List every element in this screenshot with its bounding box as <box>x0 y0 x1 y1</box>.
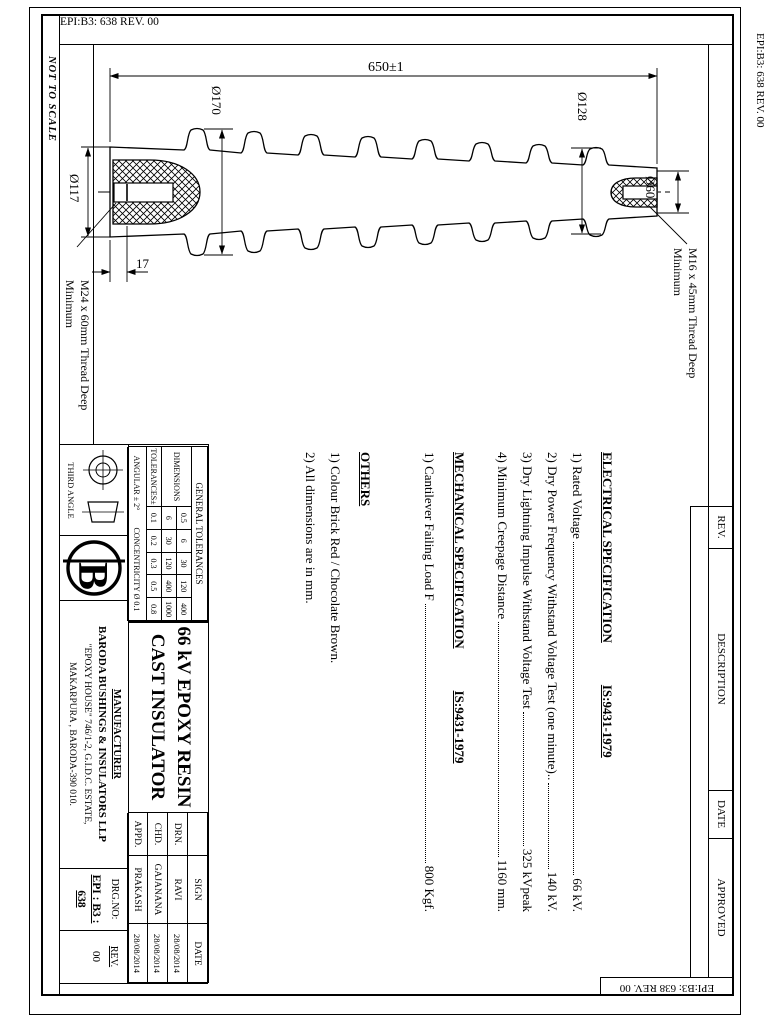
rev-header-date: DATE <box>708 790 734 838</box>
drawing-sheet: EPI:B3: 638 REV. 00 EPI:B3: 638 REV. 00 … <box>0 0 768 1024</box>
m24-note: M24 x 60mm Thread Deep Minimum <box>62 280 92 445</box>
angular-concentricity-row: ANGULAR ± 2° CONCENTRICITY Ø 0.1 <box>127 447 146 621</box>
tol-cell: 0.1 <box>146 507 161 530</box>
dot-leader <box>523 712 524 846</box>
rev-label: REV. <box>106 930 121 983</box>
sign-row-name: RAVI <box>167 856 187 924</box>
dim-length-label: 650±1 <box>368 60 404 75</box>
spec-item: 3) Dry Lightning Impulse Withstand Volta… <box>519 452 535 912</box>
bottom-code-box-top <box>600 977 734 978</box>
third-angle-symbol <box>78 446 128 535</box>
drawing-title-line2: CAST INSULATOR <box>144 622 170 812</box>
dim-cell: 400 <box>161 575 176 598</box>
logo-cell: B <box>59 535 128 600</box>
sign-row-label: CHD. <box>147 813 167 856</box>
rev-header-rev: REV. <box>708 506 734 548</box>
tolerances-label: TOLERANCES± <box>146 447 161 507</box>
concentricity-tolerance: CONCENTRICITY Ø 0.1 <box>133 527 142 611</box>
m16-note-line2: Minimum <box>670 248 685 416</box>
spec-item-value: 66 kV. <box>569 878 585 912</box>
dim-cell: 400 <box>176 598 191 621</box>
electrical-spec-standard: IS:9431-1979 <box>599 685 615 758</box>
drg-no-label: DRG.NO: <box>107 868 122 930</box>
others-item: 1) Colour Brick Red / Chocolate Brown. <box>327 452 343 912</box>
spec-item-label: 1) Rated Voltage <box>569 452 585 539</box>
dot-leader <box>548 783 549 868</box>
dim-cell: 1000 <box>161 598 176 621</box>
dot-leader <box>425 604 426 863</box>
mechanical-spec-title: MECHANICAL SPECIFICATION <box>451 452 467 649</box>
dim-cell: 6 <box>176 530 191 553</box>
spec-block: ELECTRICAL SPECIFICATION IS:9431-1979 1)… <box>285 450 615 920</box>
spec-item: 1) Rated Voltage 66 kV. <box>569 452 585 912</box>
svg-text:B: B <box>69 562 115 590</box>
tolerance-table: GENERAL TOLERANCES DIMENSIONS 0.5 6 30 1… <box>128 446 208 622</box>
drawing-title-line1: 66 kV EPOXY RESIN <box>170 622 196 812</box>
insulator-drawing: 650±1 Ø170 Ø117 Ø128 Ø60 17 <box>60 40 710 450</box>
m16-note-line1: M16 x 45mm Thread Deep <box>685 248 700 416</box>
rev-table-left <box>690 506 691 977</box>
spec-item: 4) Minimum Creepage Distance 1160 mm. <box>494 452 510 912</box>
sheet-code-bottom: EPI:B3: 638 REV. 00 <box>602 979 732 994</box>
sign-header-date: DATE <box>187 924 207 984</box>
sign-header-sign: SIGN <box>187 856 207 924</box>
spec-item-value: 1160 mm. <box>494 860 510 912</box>
spec-item: 1) Cantilever Failing Load F 800 Kgf. <box>421 452 437 912</box>
dim-cell: 0.5 <box>176 507 191 530</box>
manufacturer-label: MANUFACTURER <box>109 600 124 868</box>
tol-cell: 0.5 <box>146 575 161 598</box>
sign-row-date: 28/08/2014 <box>147 924 167 984</box>
angular-tolerance: ANGULAR ± 2° <box>133 456 142 511</box>
projection-cell: THIRD ANGLE <box>59 446 128 535</box>
others-item: 2) All dimensions are in mm. <box>302 452 318 912</box>
company-logo: B <box>59 535 128 600</box>
sheet-code-top: EPI:B3: 638 REV. 00 <box>60 16 159 28</box>
left-thread-hole <box>114 183 173 202</box>
dim-cell: 120 <box>161 553 176 576</box>
bottom-code-box-left <box>600 977 601 996</box>
others-title: OTHERS <box>357 452 373 506</box>
sign-row-label: DRN. <box>167 813 187 856</box>
dim-d128-label: Ø128 <box>575 92 590 121</box>
tol-cell: 0.3 <box>146 553 161 576</box>
m16-note: M16 x 45mm Thread Deep Minimum <box>670 248 700 416</box>
tol-cell: 0.2 <box>146 530 161 553</box>
company-name: BARODA BUSHINGS & INSULATORS LLP <box>94 600 109 868</box>
dim-cell: 6 <box>161 507 176 530</box>
sign-row-label: APPD. <box>127 813 147 856</box>
electrical-spec-title: ELECTRICAL SPECIFICATION <box>599 452 615 643</box>
drg-no-cell: DRG.NO: EPI : B3 : 638 <box>59 868 128 930</box>
dim-d170-label: Ø170 <box>209 86 224 115</box>
dimensions-label: DIMENSIONS <box>161 447 191 507</box>
spec-item-label: 2) Dry Power Frequency Withstand Voltage… <box>544 452 560 780</box>
dim-cell: 30 <box>176 553 191 576</box>
sign-header-blank <box>187 813 207 856</box>
titleblock-right <box>208 444 209 983</box>
dim-d117-label: Ø117 <box>67 174 82 203</box>
sign-row-date: 28/08/2014 <box>127 924 147 984</box>
spec-item-value: 140 kV. <box>544 872 560 912</box>
spec-item-value: 800 Kgf. <box>421 866 437 912</box>
rev-value: 00 <box>88 930 103 983</box>
drg-no-value: EPI : B3 : 638 <box>73 868 103 930</box>
mechanical-spec-standard: IS:9431-1979 <box>451 691 467 764</box>
spec-item-label: 4) Minimum Creepage Distance <box>494 452 510 619</box>
sign-row-name: GAJANANA <box>147 856 167 924</box>
not-to-scale-label: NOT TO SCALE <box>44 56 57 152</box>
drawing-title-cell: 66 kV EPOXY RESIN CAST INSULATOR <box>128 622 208 812</box>
sign-table: SIGN DATE DRN. RAVI 28/08/2014 CHD. GAJA… <box>128 812 208 983</box>
dim-cell: 30 <box>161 530 176 553</box>
m24-note-line2: Minimum <box>62 280 77 445</box>
spec-item-label: 3) Dry Lightning Impulse Withstand Volta… <box>519 452 535 709</box>
tol-cell: 0.8 <box>146 598 161 621</box>
m24-note-line1: M24 x 60mm Thread Deep <box>77 280 92 445</box>
sheet-code-right: EPI:B3: 638 REV. 00 <box>753 33 766 151</box>
dim-cell: 120 <box>176 575 191 598</box>
tolerance-table-title: GENERAL TOLERANCES <box>191 447 207 621</box>
projection-label: THIRD ANGLE <box>66 446 76 535</box>
d60-ext-lines <box>657 171 689 213</box>
sign-row-name: PRAKASH <box>127 856 147 924</box>
company-address-2: MAKARPURA , BARODA-390 010. <box>64 600 79 868</box>
spec-item: 2) Dry Power Frequency Withstand Voltage… <box>544 452 560 912</box>
dim-lip-label: 17 <box>136 256 150 271</box>
dim-d60-label: Ø60 <box>643 176 658 198</box>
dot-leader <box>498 622 499 857</box>
rev-header-approved: APPROVED <box>708 838 734 977</box>
dot-leader <box>573 542 574 875</box>
others-heading: OTHERS <box>357 452 373 912</box>
sign-row-date: 28/08/2014 <box>167 924 187 984</box>
spec-item-value: 325 kVpeak <box>519 849 535 912</box>
spec-item-label: 1) Cantilever Failing Load F <box>421 452 437 601</box>
company-address-1: "EPOXY HOUSE" 746/1-2, G.I.D.C. ESTATE, <box>79 600 94 868</box>
electrical-spec-heading: ELECTRICAL SPECIFICATION IS:9431-1979 <box>599 452 615 912</box>
rev-header-description: DESCRIPTION <box>708 548 734 790</box>
mechanical-spec-heading: MECHANICAL SPECIFICATION IS:9431-1979 <box>451 452 467 912</box>
m16-leader <box>649 206 687 244</box>
manufacturer-cell: MANUFACTURER BARODA BUSHINGS & INSULATOR… <box>59 600 128 868</box>
rev-cell: REV. 00 <box>59 930 128 983</box>
